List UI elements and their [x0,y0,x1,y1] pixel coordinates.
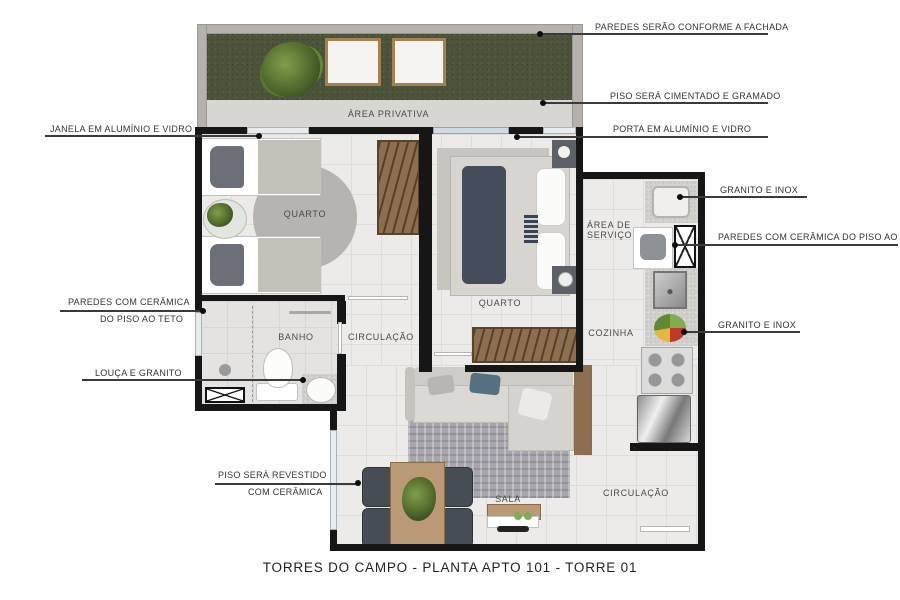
door-leaf-bedroom1 [348,296,408,300]
callout-louca-granito: LOUÇA E GRANITO [95,368,182,378]
callout-dot [200,308,206,314]
bed-blanket [258,238,320,292]
room-label-cozinha: COZINHA [584,328,638,338]
callout-dot [355,480,361,486]
room-label-banho: BANHO [266,332,326,342]
wall-left-outer [195,127,202,411]
wall-right-outer [698,172,705,551]
sun-lounger [325,38,381,86]
fruit-bowl [654,314,686,342]
callout-line [680,196,807,198]
callout-paredes-ceramica-left-1: PAREDES COM CERÂMICA [68,297,190,307]
callout-paredes-fachada: PAREDES SERÃO CONFORME A FACHADA [595,22,788,32]
bed-pillow [210,146,244,188]
callout-dot [300,377,306,383]
sofa-arm [405,367,415,421]
callout-line [540,33,768,35]
garden-wall-right [572,24,583,129]
wall-kitchen-bottom [630,443,700,451]
callout-line [215,483,359,485]
callout-line [60,310,203,312]
glass-door-bedroom2 [433,127,509,134]
kitchen-sink [653,271,687,309]
tv-plant-dot [514,512,522,520]
door-leaf-banho [338,322,342,354]
callout-granito-inox-bottom: GRANITO E INOX [718,320,796,330]
callout-paredes-ceramica-right: PAREDES COM CERÂMICA DO PISO AO TETO [718,232,900,242]
wall-banho-bottom [195,404,337,411]
callout-dot [677,194,683,200]
callout-granito-inox-top: GRANITO E INOX [720,185,798,195]
wall-bedroom-divider [419,127,432,372]
nightstand-flower [558,146,570,158]
callout-dot [672,242,678,248]
callout-piso-cimentado: PISO SERÁ CIMENTADO E GRAMADO [610,91,781,101]
shower-divider [252,306,253,402]
callout-dot [537,31,543,37]
callout-paredes-ceramica-left-2: DO PISO AO TETO [100,314,183,324]
wall-bedroom2-bottom [465,365,583,372]
sofa-pillow-blue [469,372,501,395]
dining-chair [441,508,473,548]
bed-blanket-dark [462,166,506,284]
towel-bar [289,311,331,314]
sun-lounger [392,38,446,86]
bed-cushion [524,215,538,243]
callout-dot [256,133,262,139]
area-servico-line1: ÁREA DE [587,220,639,230]
callout-piso-revestido-2: COM CERÂMICA [248,487,323,497]
bed-blanket [258,140,320,194]
callout-line [82,379,304,381]
door-leaf-bedroom2 [434,352,472,356]
room-label-circulacao1: CIRCULAÇÃO [345,332,417,342]
nightstand-lamp [558,272,573,287]
dining-chair [441,467,473,507]
wall-bedroom1-bottom [195,295,345,301]
wall-service-left [576,127,583,372]
callout-line [543,102,768,104]
callout-janela-aluminio: JANELA EM ALUMÍNIO E VIDRO [50,124,192,134]
garden-wall-top [197,24,583,34]
callout-dot [540,100,546,106]
entry-door-threshold [640,526,690,532]
stove [641,347,693,394]
wardrobe-bedroom1 [377,140,420,235]
floor-plan: ÁREA PRIVATIVA QUARTO QUARTO [0,0,900,600]
callout-line [675,244,898,246]
callout-porta-aluminio: PORTA EM ALUMÍNIO E VIDRO [613,124,751,134]
room-label-quarto2: QUARTO [445,298,555,308]
callout-line [684,331,800,333]
callout-dot [514,134,520,140]
washer-door [640,234,666,260]
area-servico-line2: SERVIÇO [587,230,639,240]
wall-bottom [330,544,705,551]
soundbar [497,526,529,532]
callout-dot [681,329,687,335]
window-top-right [543,127,576,134]
garden-grass [205,32,572,100]
wall-service-top [576,172,705,179]
tv-plant-dot [524,512,532,520]
room-label-quarto1: QUARTO [250,209,360,219]
bed-pillow [536,168,566,226]
toilet-bowl [263,348,293,388]
bed-pillow [210,244,244,286]
sofa-pillow [427,374,455,395]
room-label-circulacao2: CIRCULAÇÃO [600,488,672,498]
room-label-area-servico: ÁREA DE SERVIÇO [587,220,639,240]
callout-line [45,135,260,137]
window-banho [195,312,202,356]
callout-line [517,136,768,138]
room-label-sala: SALA [483,494,533,504]
wardrobe-bedroom2 [472,327,578,363]
console-shelf [574,365,592,455]
wall-banho-right-upper [337,301,346,324]
fridge [637,395,691,443]
banho-basin [306,377,336,403]
duct-shaft-banho [205,387,245,403]
room-label-area-privativa: ÁREA PRIVATIVA [205,109,572,119]
plan-title: TORRES DO CAMPO - PLANTA APTO 101 - TORR… [0,560,900,575]
shower-drain [219,364,231,376]
callout-piso-revestido-1: PISO SERÁ REVESTIDO [218,470,327,480]
wall-banho-right-lower [337,354,346,411]
laundry-tank [652,186,690,218]
window-sala [330,430,337,530]
